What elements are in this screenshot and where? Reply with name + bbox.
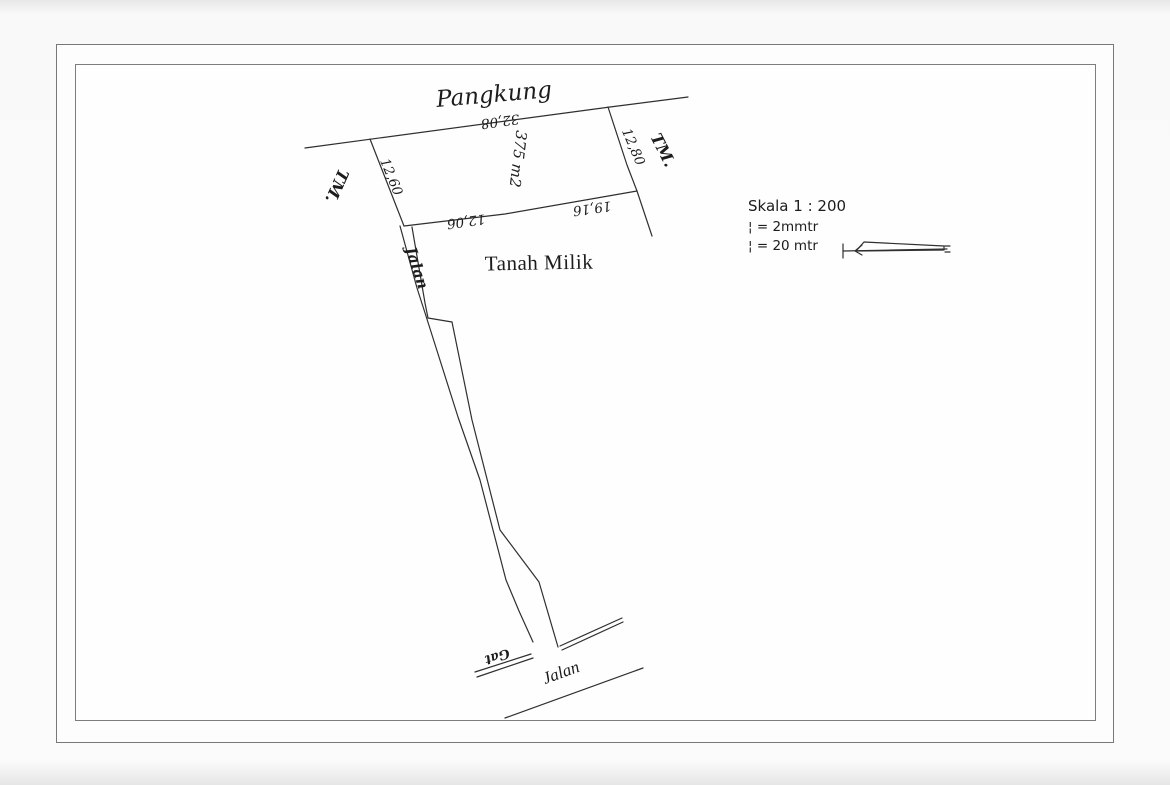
scale-title: Skala 1 : 200 — [748, 197, 846, 215]
road-right-lower-line — [562, 622, 623, 650]
survey-sketch-sheet: Pangkung 32,08 12,60 12,80 12,06 19,16 3… — [0, 0, 1170, 785]
lane-jog-line — [428, 318, 452, 322]
scale-line-2: ¦ = 20 mtr — [748, 238, 818, 254]
scale-arrowhead-icon — [855, 245, 862, 255]
road-right-upper-line — [560, 618, 622, 646]
survey-linework — [0, 0, 1170, 785]
owner-parcel-label: Tanah Milik — [485, 250, 594, 277]
lane-lower-right-line — [452, 322, 558, 647]
lane-lower-left-line — [426, 316, 533, 642]
scale-line-1: ¦ = 2mmtr — [748, 219, 818, 235]
